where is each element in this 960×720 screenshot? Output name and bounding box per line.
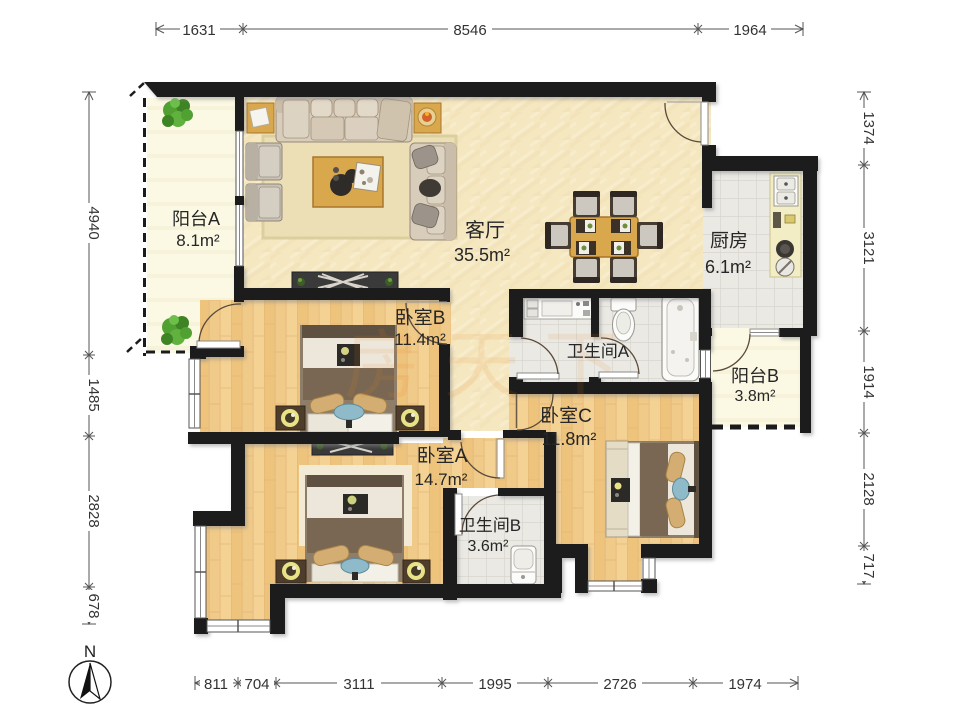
svg-text:704: 704 [244,676,269,693]
svg-text:1974: 1974 [728,676,761,693]
svg-text:4940: 4940 [85,206,102,239]
svg-text:B: B [510,516,521,535]
svg-text:11.4m²: 11.4m² [394,330,446,349]
svg-text:3111: 3111 [343,676,374,693]
svg-text:C: C [578,406,592,427]
svg-text:N: N [84,642,96,661]
svg-text:2726: 2726 [603,676,636,693]
svg-text:A: A [208,209,220,229]
svg-text:B: B [767,366,779,386]
svg-text:35.5m²: 35.5m² [454,245,510,265]
svg-text:A: A [455,446,468,467]
svg-text:3121: 3121 [860,231,877,264]
svg-text:3.8m²: 3.8m² [735,388,777,405]
svg-text:8546: 8546 [453,22,486,39]
svg-text:6.1m²: 6.1m² [705,257,751,277]
svg-text:1631: 1631 [182,22,215,39]
svg-text:3.6m²: 3.6m² [468,538,510,555]
svg-text:B: B [433,308,446,329]
svg-text:1374: 1374 [860,111,877,144]
svg-text:2828: 2828 [85,494,102,527]
svg-text:A: A [618,342,630,361]
svg-text:1914: 1914 [860,365,877,398]
svg-text:1964: 1964 [733,22,766,39]
svg-text:1485: 1485 [85,378,102,411]
svg-text:811: 811 [204,676,228,693]
svg-text:717: 717 [860,553,877,578]
svg-text:1995: 1995 [478,676,511,693]
svg-text:11.8m²: 11.8m² [542,429,597,449]
svg-text:8.1m²: 8.1m² [176,231,220,250]
svg-text:678: 678 [85,593,102,618]
svg-text:2128: 2128 [860,472,877,505]
svg-text:14.7m²: 14.7m² [415,470,468,489]
